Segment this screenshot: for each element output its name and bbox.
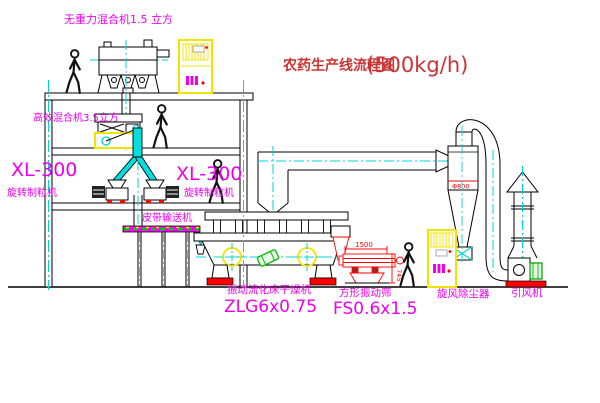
label-granulator-left-name: 旋转制粒机 <box>7 186 57 199</box>
label-granulator-right-name: 旋转制粒机 <box>184 186 234 199</box>
label-sieve-name: 方形振动筛 <box>339 286 392 299</box>
label-dryer-model: ZLG6x0.75 <box>224 297 317 317</box>
label-sieve-model: FS0.6x1.5 <box>333 299 417 319</box>
label-cyclone: 旋风除尘器 <box>437 287 490 300</box>
label-gravity-mixer: 无重力混合机1.5 立方 <box>64 12 173 26</box>
label-high-eff-mixer: 高效混合机3.5立方 <box>33 111 119 124</box>
cabinet-2-marks <box>433 264 445 273</box>
label-belt-conveyor: 皮带输送机 <box>142 211 192 224</box>
label-dryer-name: 振动流化床干燥机 <box>227 283 311 296</box>
cyclone-diameter-label: Φ800 <box>452 183 470 191</box>
label-fan: 引风机 <box>511 286 543 299</box>
fan-motor <box>530 263 542 279</box>
diagram-canvas: Φ800 <box>0 0 600 403</box>
control-cabinet-2 <box>428 230 456 287</box>
sieve-width-dimension: 1500 <box>355 241 373 249</box>
label-granulator-right-model: XL-300 <box>176 163 242 185</box>
page-title-capacity: (500kg/h) <box>366 53 468 77</box>
control-cabinet-1 <box>179 40 212 93</box>
process-flow-diagram: Φ800 <box>0 0 600 403</box>
label-granulator-left-model: XL-300 <box>11 159 77 181</box>
cabinet-1-marks <box>186 76 198 85</box>
